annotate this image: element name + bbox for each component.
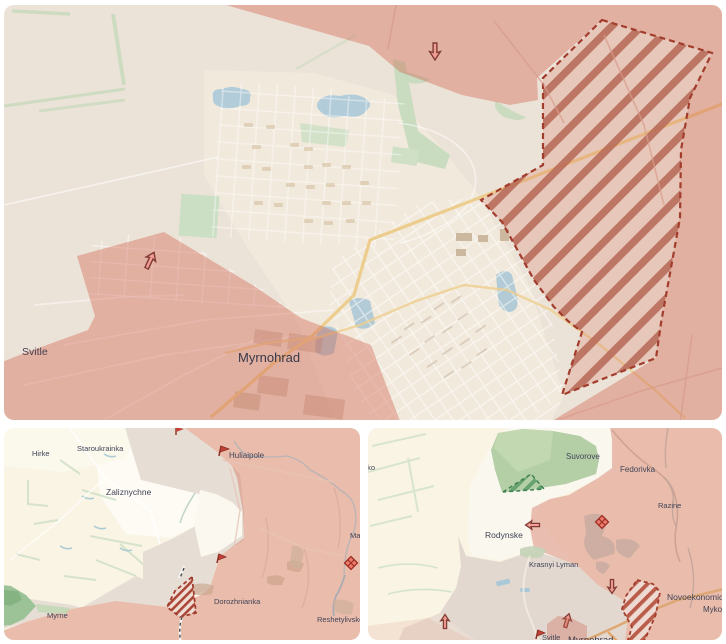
svg-text:Staroukrainka: Staroukrainka	[77, 444, 124, 453]
svg-text:Rodynske: Rodynske	[485, 530, 523, 540]
svg-text:Razine: Razine	[658, 501, 681, 510]
svg-text:Myrne: Myrne	[47, 611, 68, 620]
svg-text:Huliaipole: Huliaipole	[229, 451, 265, 460]
svg-text:Fedorivka: Fedorivka	[620, 465, 656, 474]
svg-text:Novoekonomich: Novoekonomich	[667, 592, 722, 602]
svg-text:Hirke: Hirke	[32, 449, 50, 458]
svg-text:Suvorove: Suvorove	[566, 452, 600, 461]
svg-text:Zaliznychne: Zaliznychne	[106, 487, 152, 497]
svg-text:nko: nko	[368, 463, 375, 472]
svg-text:Myrnohrad: Myrnohrad	[238, 350, 300, 365]
svg-text:Svitle: Svitle	[542, 633, 560, 640]
svg-text:Mykola: Mykola	[703, 605, 722, 614]
svg-text:Dorozhnianka: Dorozhnianka	[214, 597, 261, 606]
svg-text:Krasnyi Lyman: Krasnyi Lyman	[529, 560, 578, 569]
svg-text:Svitle: Svitle	[22, 346, 48, 358]
svg-text:Ma: Ma	[350, 531, 360, 540]
svg-text:Reshetylivske: Reshetylivske	[317, 615, 360, 624]
svg-text:Myrnohrad: Myrnohrad	[568, 635, 613, 640]
